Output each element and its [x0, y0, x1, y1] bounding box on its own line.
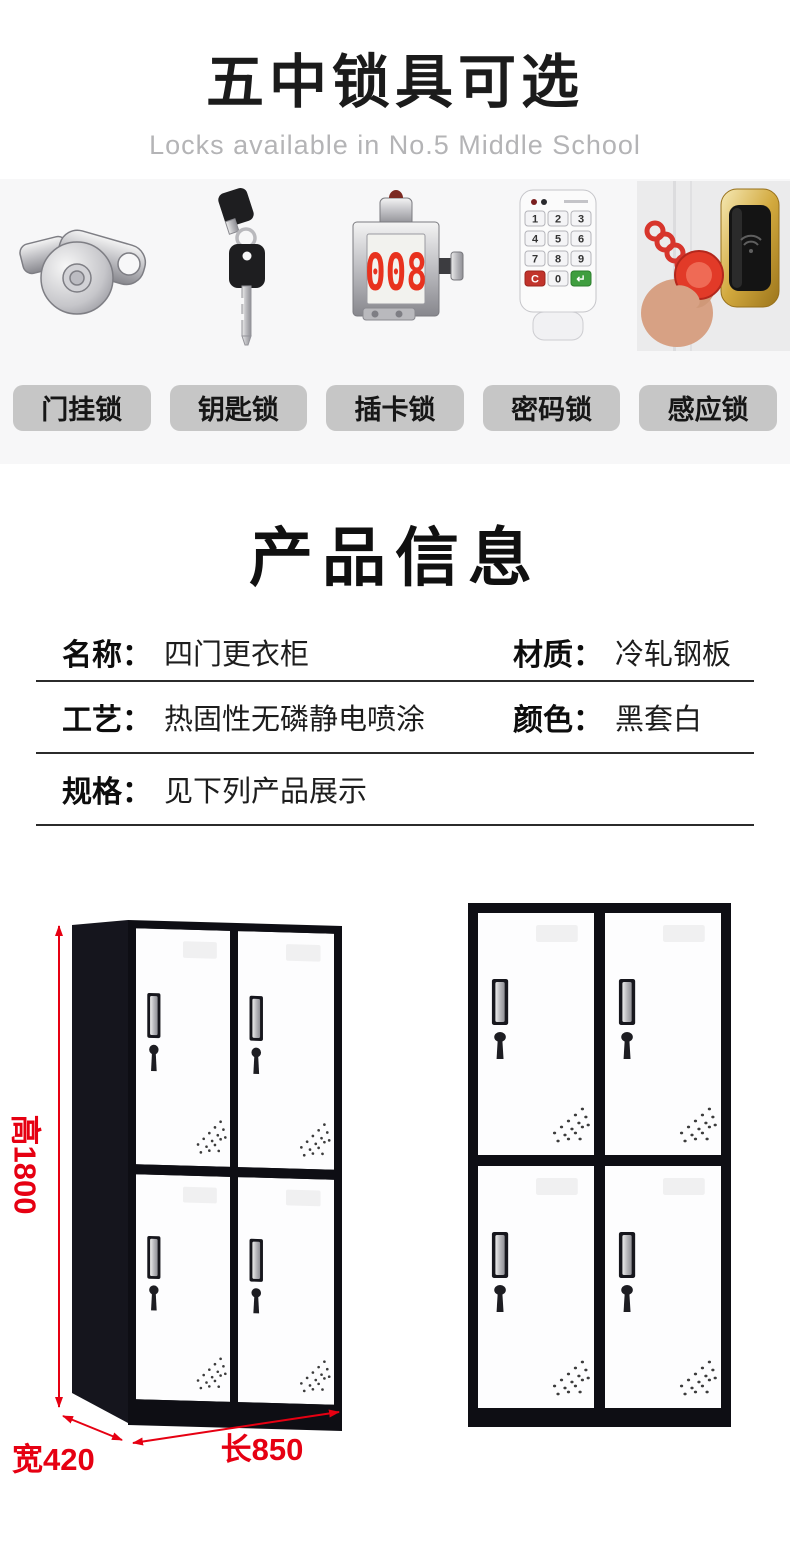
- spec-label: 规格：: [62, 767, 152, 811]
- info-row-1: 名称： 四门更衣柜 材质： 冷轧钢板: [36, 624, 754, 682]
- info-row-2: 工艺： 热固性无磷静电喷涂 颜色： 黑套白: [36, 682, 754, 754]
- keypad-key-enter: ↵: [577, 273, 586, 285]
- process-value: 热固性无磷静电喷涂: [164, 696, 425, 738]
- product-info-title: 产品信息: [0, 520, 790, 597]
- product-display-section: 高1800 宽420 长850: [0, 870, 790, 1510]
- product-info-table: 名称： 四门更衣柜 材质： 冷轧钢板 工艺： 热固性无磷静电喷涂 颜色： 黑套白…: [36, 624, 754, 826]
- cam-lock-image: [0, 181, 159, 351]
- lock-label-key: 钥匙锁: [170, 385, 308, 431]
- info-cell-name: 名称： 四门更衣柜: [36, 630, 513, 674]
- lock-photos-row: 008: [0, 181, 790, 351]
- induction-lock-image: [637, 181, 790, 351]
- color-value: 黑套白: [615, 696, 702, 738]
- info-row-3: 规格： 见下列产品展示: [36, 754, 754, 826]
- keypad-key: 7: [532, 253, 538, 265]
- page-header: 五中锁具可选 Locks available in No.5 Middle Sc…: [0, 0, 790, 161]
- keypad-key: 3: [578, 213, 584, 225]
- locks-section: 008: [0, 179, 790, 464]
- length-dimension-label: 长850: [200, 1424, 324, 1469]
- lock-label-password: 密码锁: [483, 385, 621, 431]
- page-subtitle: Locks available in No.5 Middle School: [0, 130, 790, 161]
- induction-lock-icon: [637, 181, 790, 351]
- lock-label-hanging: 门挂锁: [13, 385, 151, 431]
- width-dimension-label: 宽420: [12, 1434, 95, 1479]
- keypad-key: 6: [578, 233, 584, 245]
- cabinet-front-image: [468, 903, 731, 1427]
- lock-labels-row: 门挂锁 钥匙锁 插卡锁 密码锁 感应锁: [0, 385, 790, 431]
- spec-value: 见下列产品展示: [164, 768, 367, 810]
- page-title: 五中锁具可选: [0, 48, 790, 118]
- lock-label-induction: 感应锁: [639, 385, 777, 431]
- keypad-lock-icon: 1 2 3 4 5 6 7 8 9 C 0 ↵: [482, 182, 632, 350]
- keypad-key: 8: [555, 253, 561, 265]
- height-dimension-label: 高1800: [6, 1080, 51, 1250]
- key-lock-image: [159, 181, 318, 351]
- key-lock-icon: [169, 182, 309, 350]
- keypad-lock-image: 1 2 3 4 5 6 7 8 9 C 0 ↵: [478, 181, 637, 351]
- cabinet-perspective-image: [30, 895, 355, 1455]
- info-cell-spec: 规格： 见下列产品展示: [36, 767, 513, 811]
- process-label: 工艺：: [62, 695, 152, 739]
- info-cell-color: 颜色： 黑套白: [513, 695, 754, 739]
- keypad-key: 2: [555, 213, 561, 225]
- info-cell-material: 材质： 冷轧钢板: [513, 630, 754, 674]
- keypad-key: 1: [532, 213, 538, 225]
- keypad-key: 4: [532, 233, 539, 245]
- material-value: 冷轧钢板: [615, 631, 731, 673]
- keypad-key: 5: [555, 233, 561, 245]
- name-label: 名称：: [62, 630, 152, 674]
- card-lock-number: 008: [365, 244, 427, 303]
- cam-lock-icon: [5, 182, 155, 350]
- keypad-key: 9: [578, 253, 584, 265]
- name-value: 四门更衣柜: [164, 631, 309, 673]
- keypad-key: 0: [555, 273, 561, 285]
- info-cell-process: 工艺： 热固性无磷静电喷涂: [36, 695, 513, 739]
- card-lock-icon: 008: [323, 182, 473, 350]
- material-label: 材质：: [513, 630, 603, 674]
- lock-label-card: 插卡锁: [326, 385, 464, 431]
- card-lock-image: 008: [319, 181, 478, 351]
- keypad-key-clear: C: [531, 273, 539, 285]
- color-label: 颜色：: [513, 695, 603, 739]
